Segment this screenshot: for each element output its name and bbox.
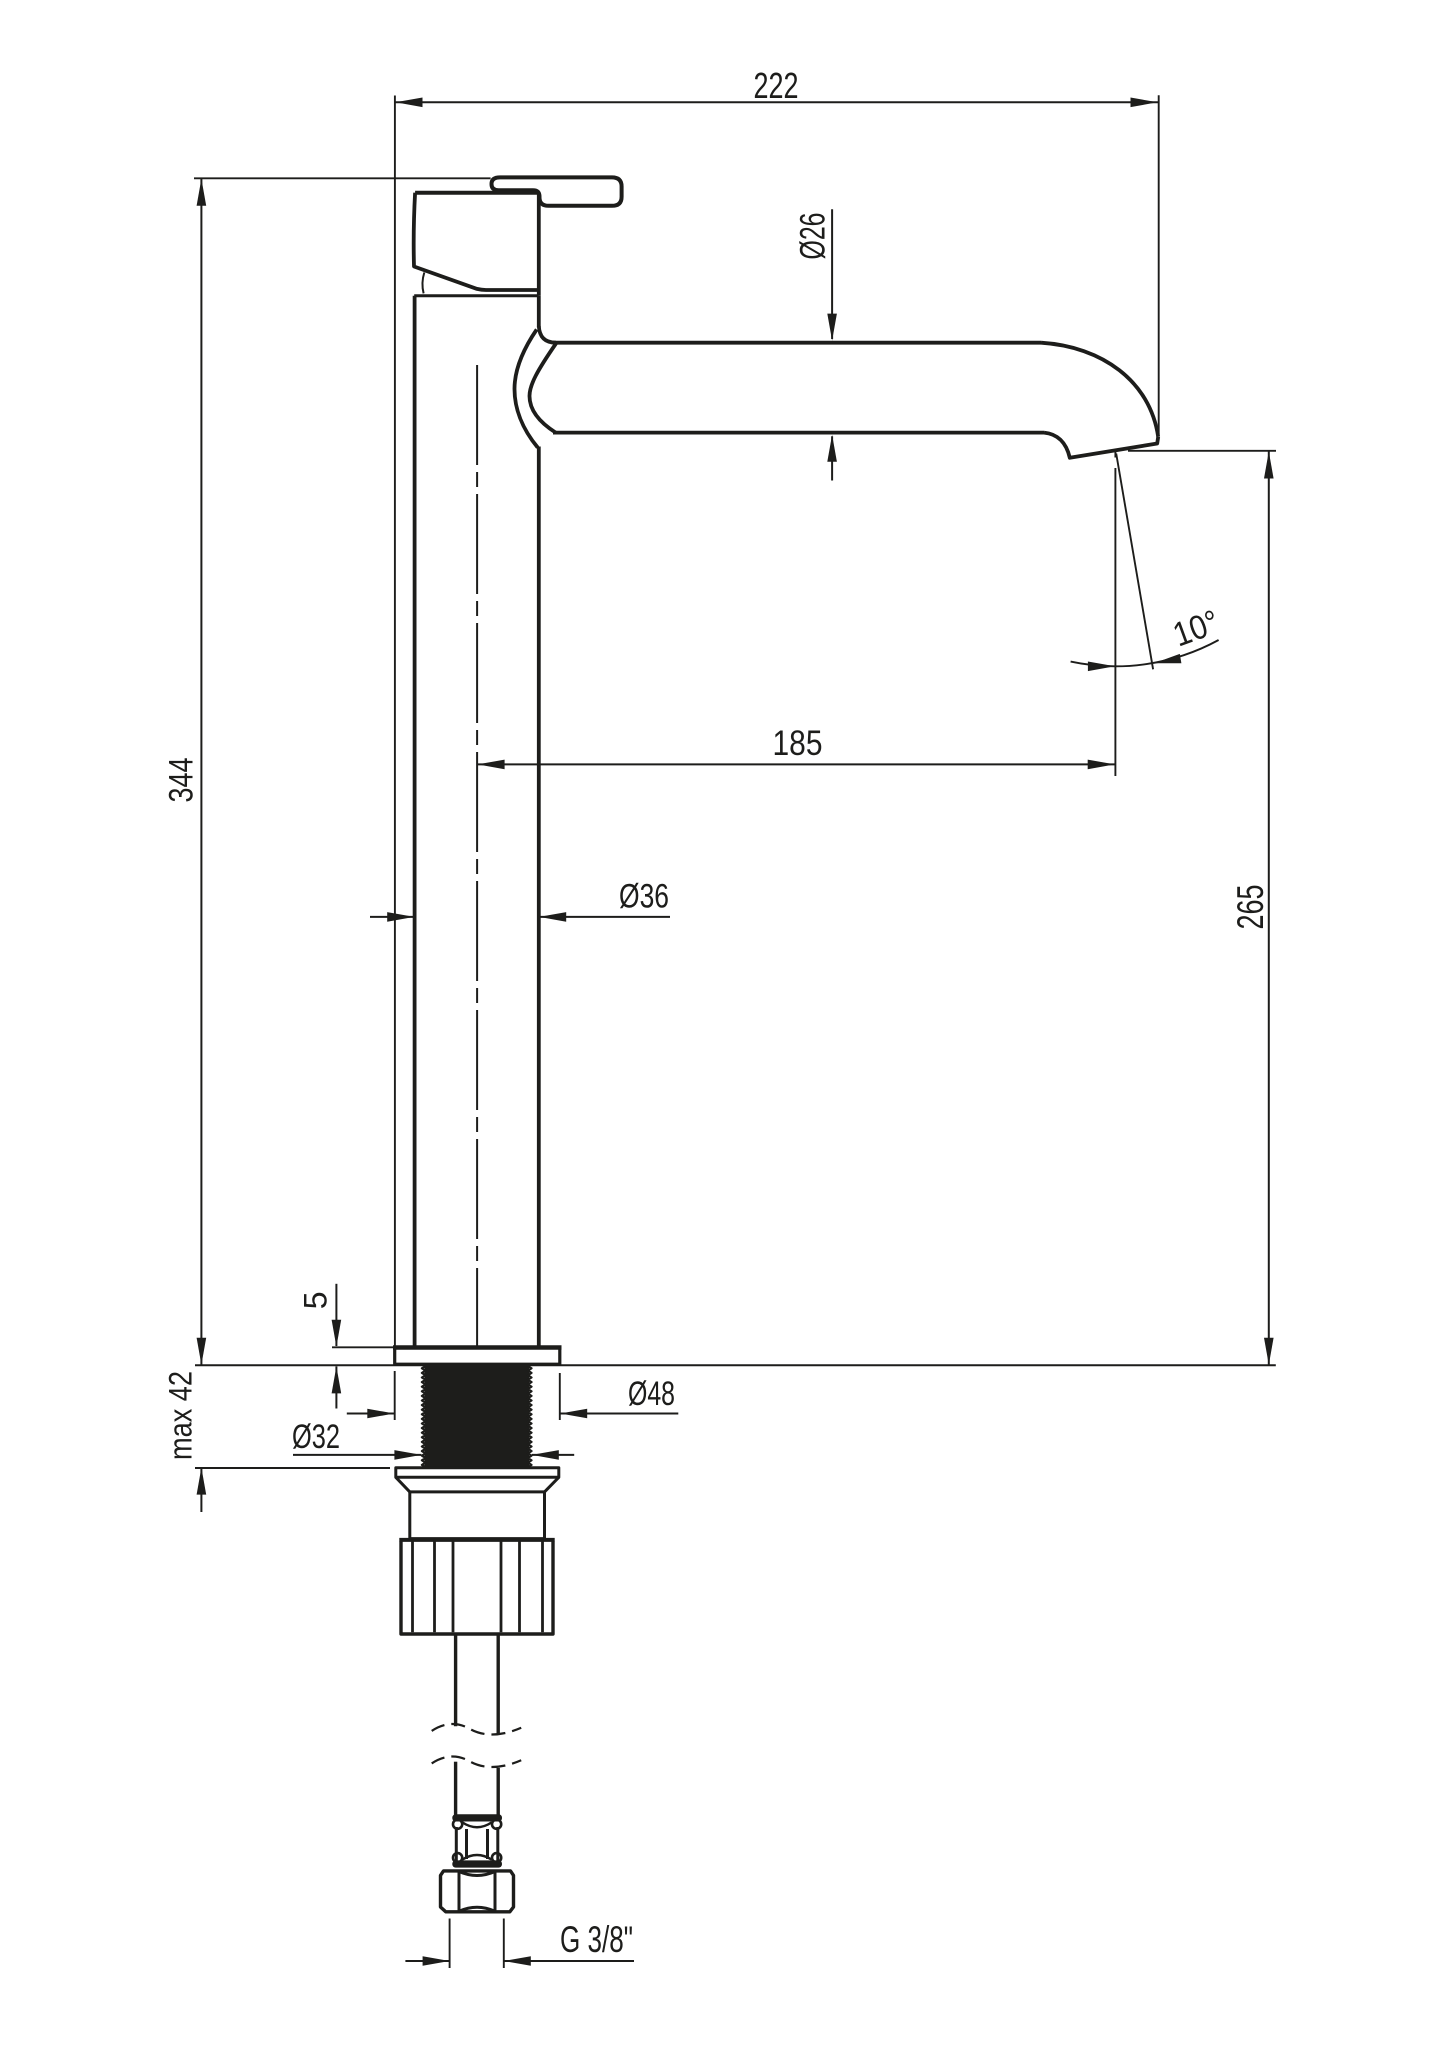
svg-text:344: 344 [162,758,200,803]
svg-text:5: 5 [298,1292,334,1310]
svg-text:265: 265 [1230,885,1271,930]
svg-text:max 42: max 42 [162,1371,198,1460]
svg-text:222: 222 [754,65,799,106]
svg-text:Ø26: Ø26 [793,213,832,260]
svg-text:Ø48: Ø48 [628,1375,675,1413]
svg-text:G 3/8": G 3/8" [560,1919,633,1960]
svg-text:Ø36: Ø36 [619,878,669,916]
svg-text:Ø32: Ø32 [292,1418,340,1456]
svg-text:185: 185 [773,724,823,763]
